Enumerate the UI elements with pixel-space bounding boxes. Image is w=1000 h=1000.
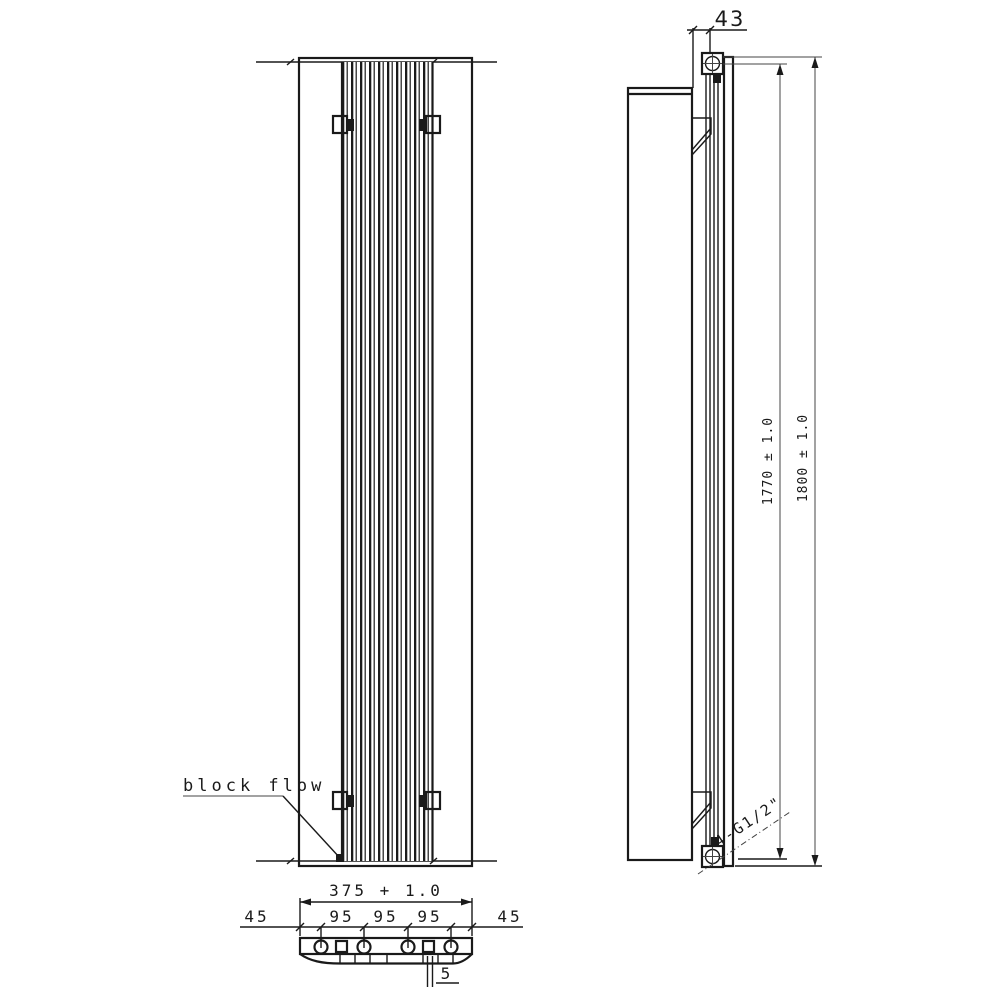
tube-side-lines xyxy=(706,73,718,847)
arrow-right xyxy=(461,899,472,906)
height-dimensions: 43 1770 ± 1.0 1800 ± 1.0 4-G1/2" xyxy=(687,7,822,874)
block-flow-callout: block flow xyxy=(183,776,344,862)
pitch-1-label: 95 xyxy=(329,907,354,926)
side-view xyxy=(628,53,733,867)
technical-drawing-canvas: block flow 375 + 1.0 xyxy=(0,0,1000,1000)
width-dimensions: 375 + 1.0 45 95 95 95 45 5 xyxy=(240,881,523,987)
pitch-3-label: 95 xyxy=(417,907,442,926)
connection-callout: 4-G1/2" xyxy=(698,793,790,874)
wall-offset-label: 43 xyxy=(715,7,746,31)
base-feet-dividers xyxy=(340,954,453,963)
side-bracket-top xyxy=(692,118,711,155)
arrow-down xyxy=(777,848,784,859)
arrow-left xyxy=(300,899,311,906)
overall-height-label: 1800 ± 1.0 xyxy=(796,414,811,502)
pitch-2-label: 95 xyxy=(373,907,398,926)
tube-bundle xyxy=(342,62,433,861)
top-valve xyxy=(702,53,723,83)
block-flow-label: block flow xyxy=(183,776,325,796)
rail-width-label: 5 xyxy=(441,964,454,983)
callout-terminator xyxy=(336,854,344,862)
edge-right-label: 45 xyxy=(497,907,522,926)
arrow-up xyxy=(777,64,784,75)
base-curved-profile xyxy=(300,954,472,964)
tapping-height-label: 1770 ± 1.0 xyxy=(761,417,776,505)
mounting-rail-right xyxy=(423,941,434,952)
bottom-view xyxy=(300,938,472,964)
side-bracket-bottom xyxy=(692,792,711,829)
radiator-panel-side xyxy=(724,57,733,866)
callout-leader-line xyxy=(283,796,340,858)
connection-size-label: 4-G1/2" xyxy=(711,793,785,851)
arrow-up xyxy=(812,57,819,68)
mounting-rail-left xyxy=(336,941,347,952)
arrow-down xyxy=(812,855,819,866)
front-view: block flow xyxy=(183,58,497,866)
radiator-drawing: block flow 375 + 1.0 xyxy=(0,0,1000,1000)
edge-left-label: 45 xyxy=(244,907,269,926)
brick-wall xyxy=(628,88,692,860)
overall-width-label: 375 + 1.0 xyxy=(329,881,443,900)
